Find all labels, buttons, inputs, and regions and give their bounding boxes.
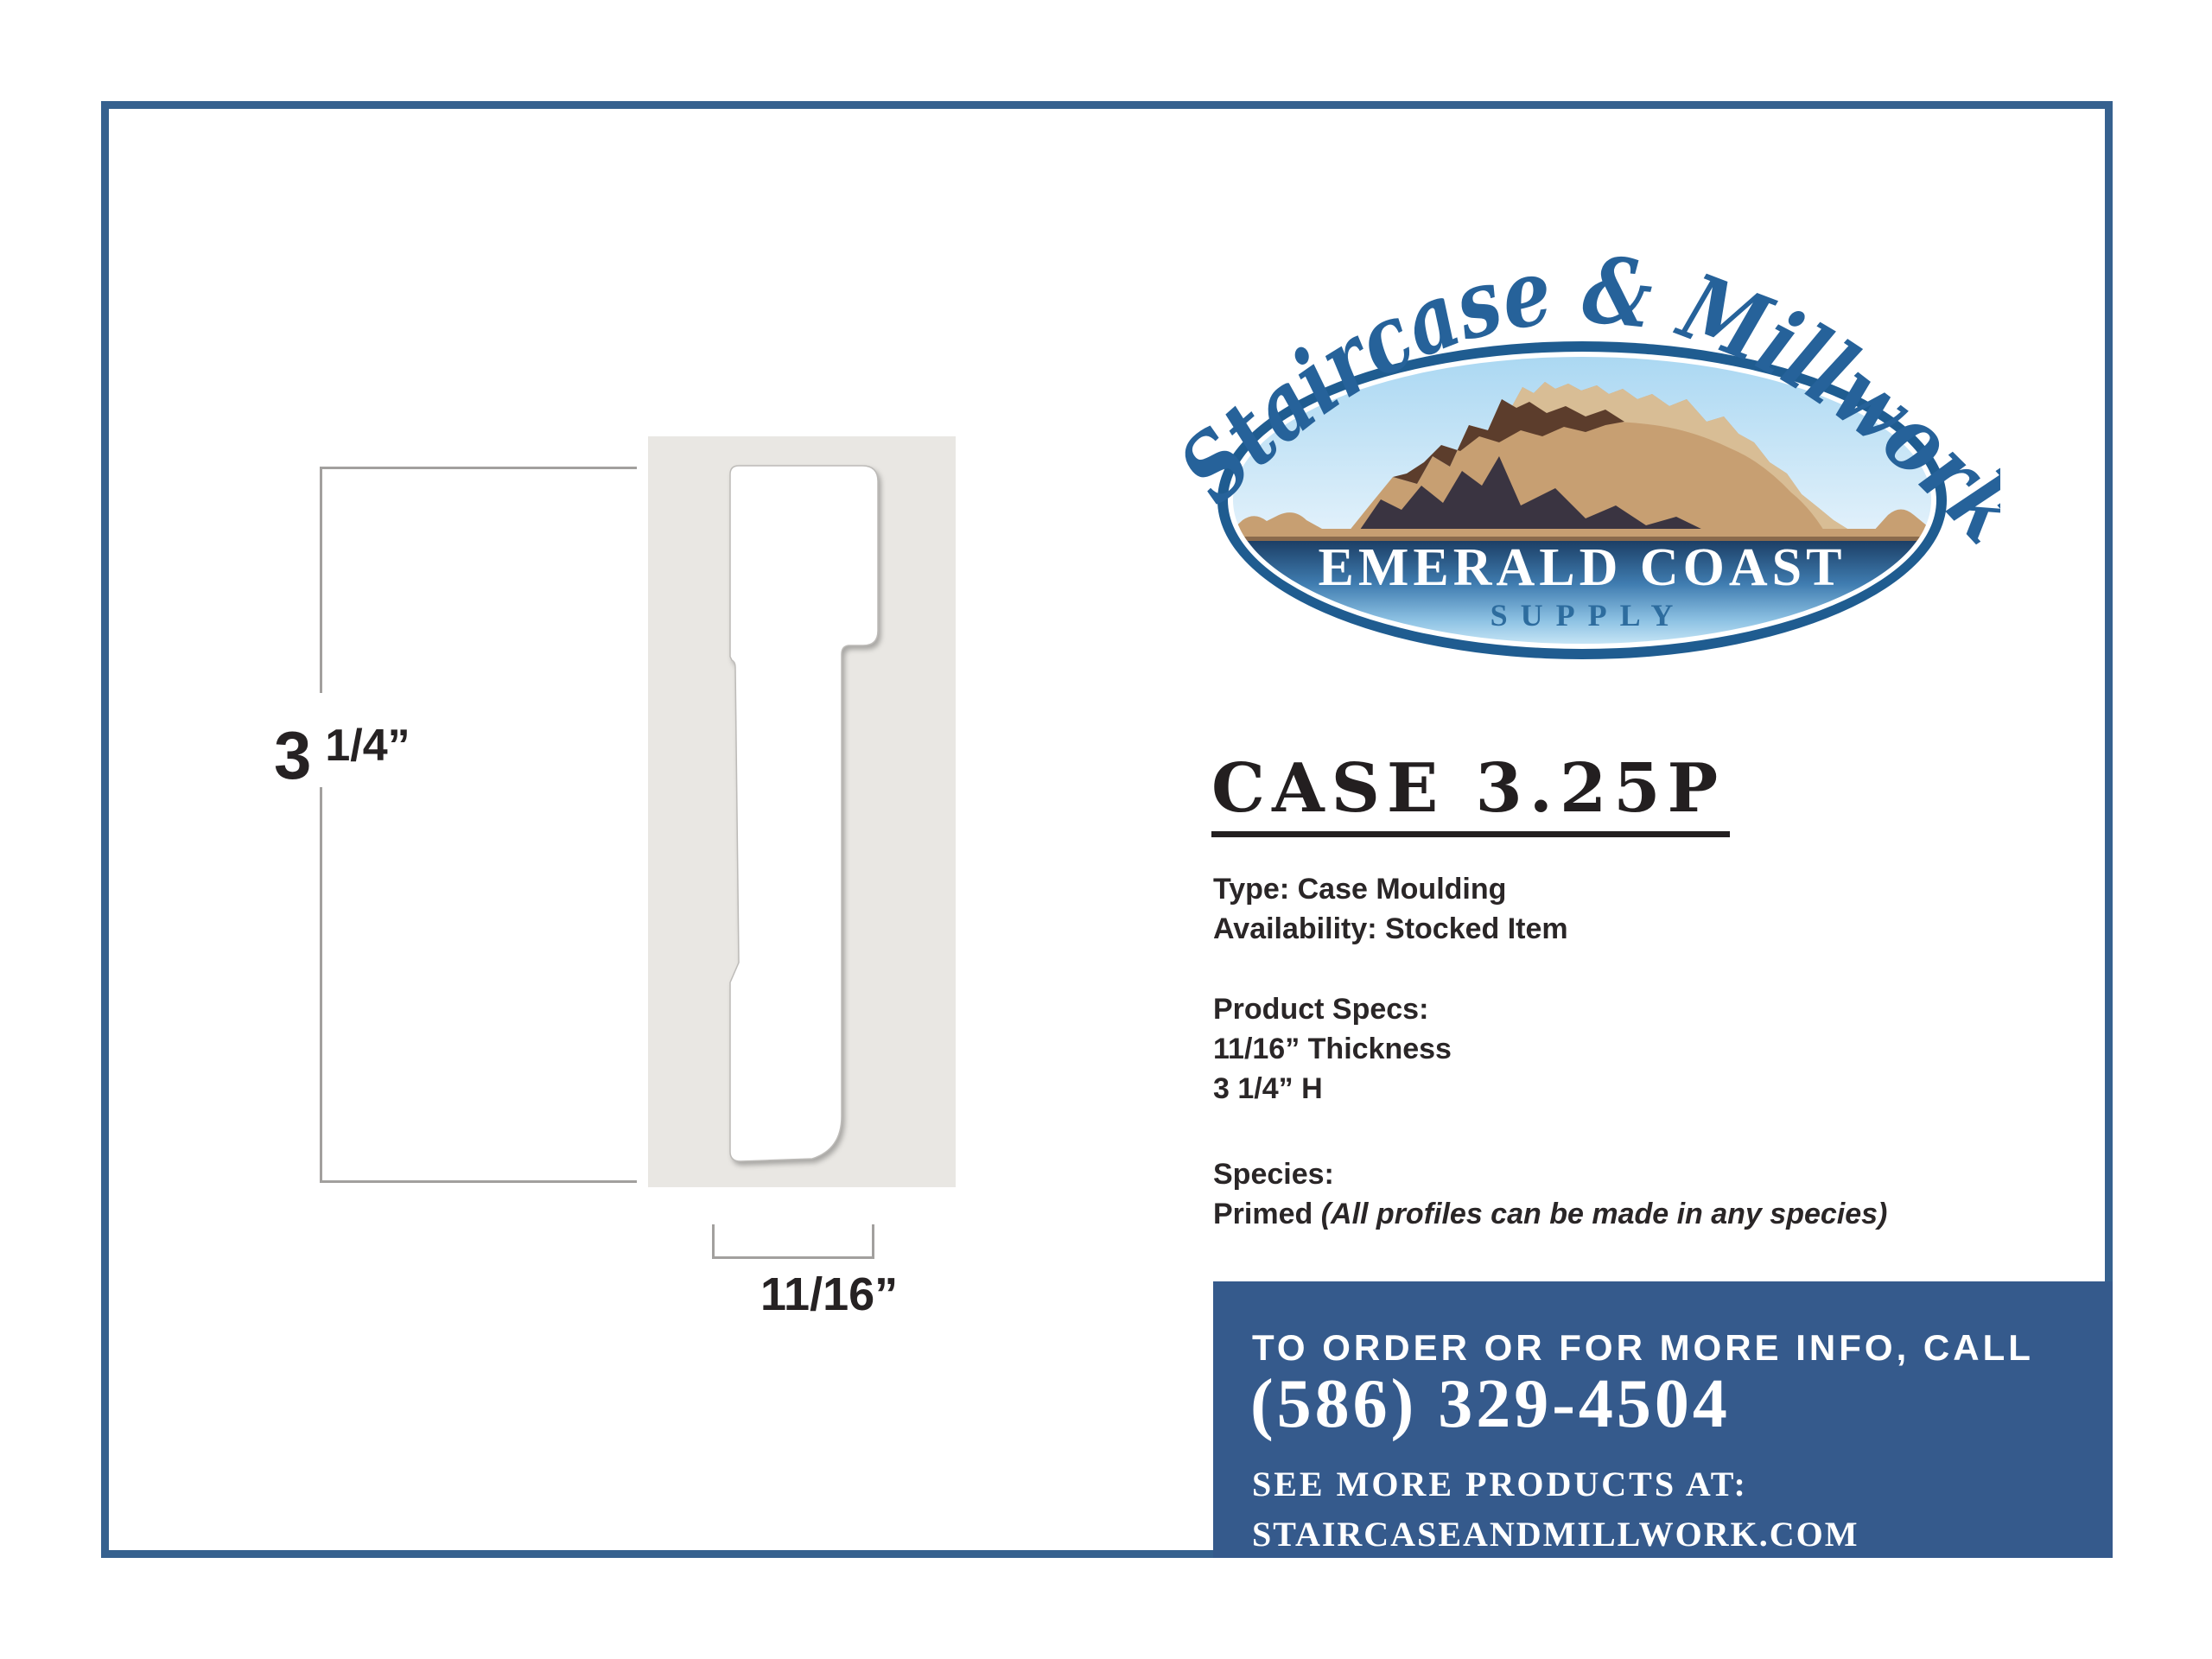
- height-dim-whole: 3: [274, 721, 311, 789]
- logo-name-text: EMERALD COAST: [1318, 538, 1846, 597]
- height-dim-bottom-tick: [320, 1180, 637, 1183]
- contact-phone-number: (586) 329-4504: [1250, 1365, 1731, 1444]
- height-dim-line-upper: [320, 467, 322, 693]
- product-type-line: Type: Case Moulding: [1213, 869, 1887, 909]
- contact-website: STAIRCASEANDMILLWORK.COM: [1252, 1514, 1859, 1554]
- height-dim-line-lower: [320, 787, 322, 1183]
- contact-call-line: TO ORDER OR FOR MORE INFO, CALL: [1252, 1327, 2034, 1369]
- product-specs-heading: Product Specs:: [1213, 989, 1887, 1029]
- species-note: (All profiles can be made in any species…: [1321, 1198, 1888, 1230]
- height-dim-frac: 1/4”: [325, 723, 410, 768]
- width-dim-right-tick: [872, 1224, 874, 1259]
- width-dim-label: 11/16”: [760, 1268, 898, 1321]
- height-dim-top-tick: [320, 467, 637, 469]
- product-availability-line: Availability: Stocked Item: [1213, 909, 1887, 949]
- product-specs-block: Type: Case Moulding Availability: Stocke…: [1213, 869, 1887, 1234]
- emerald-coast-logo: EMERALD COAST SUPPLY Staircase & Millwor…: [1171, 200, 2000, 690]
- height-dim-label: 3 1/4”: [274, 721, 410, 789]
- shoreline-strip: [1217, 529, 1949, 537]
- width-dim-left-tick: [712, 1224, 715, 1259]
- moulding-profile-drawing: [648, 436, 956, 1187]
- product-title: CASE 3.25P: [1211, 755, 1730, 837]
- product-height-line: 3 1/4” H: [1213, 1069, 1887, 1109]
- species-value: Primed: [1213, 1198, 1321, 1230]
- product-species-heading: Species:: [1213, 1154, 1887, 1194]
- moulding-profile-shape: [730, 466, 878, 1161]
- width-dim-line: [712, 1256, 874, 1259]
- product-thickness-line: 11/16” Thickness: [1213, 1029, 1887, 1069]
- contact-see-more-line: SEE MORE PRODUCTS AT:: [1252, 1464, 1748, 1504]
- logo-supply-text: SUPPLY: [1491, 598, 1687, 632]
- product-species-line: Primed (All profiles can be made in any …: [1213, 1194, 1887, 1234]
